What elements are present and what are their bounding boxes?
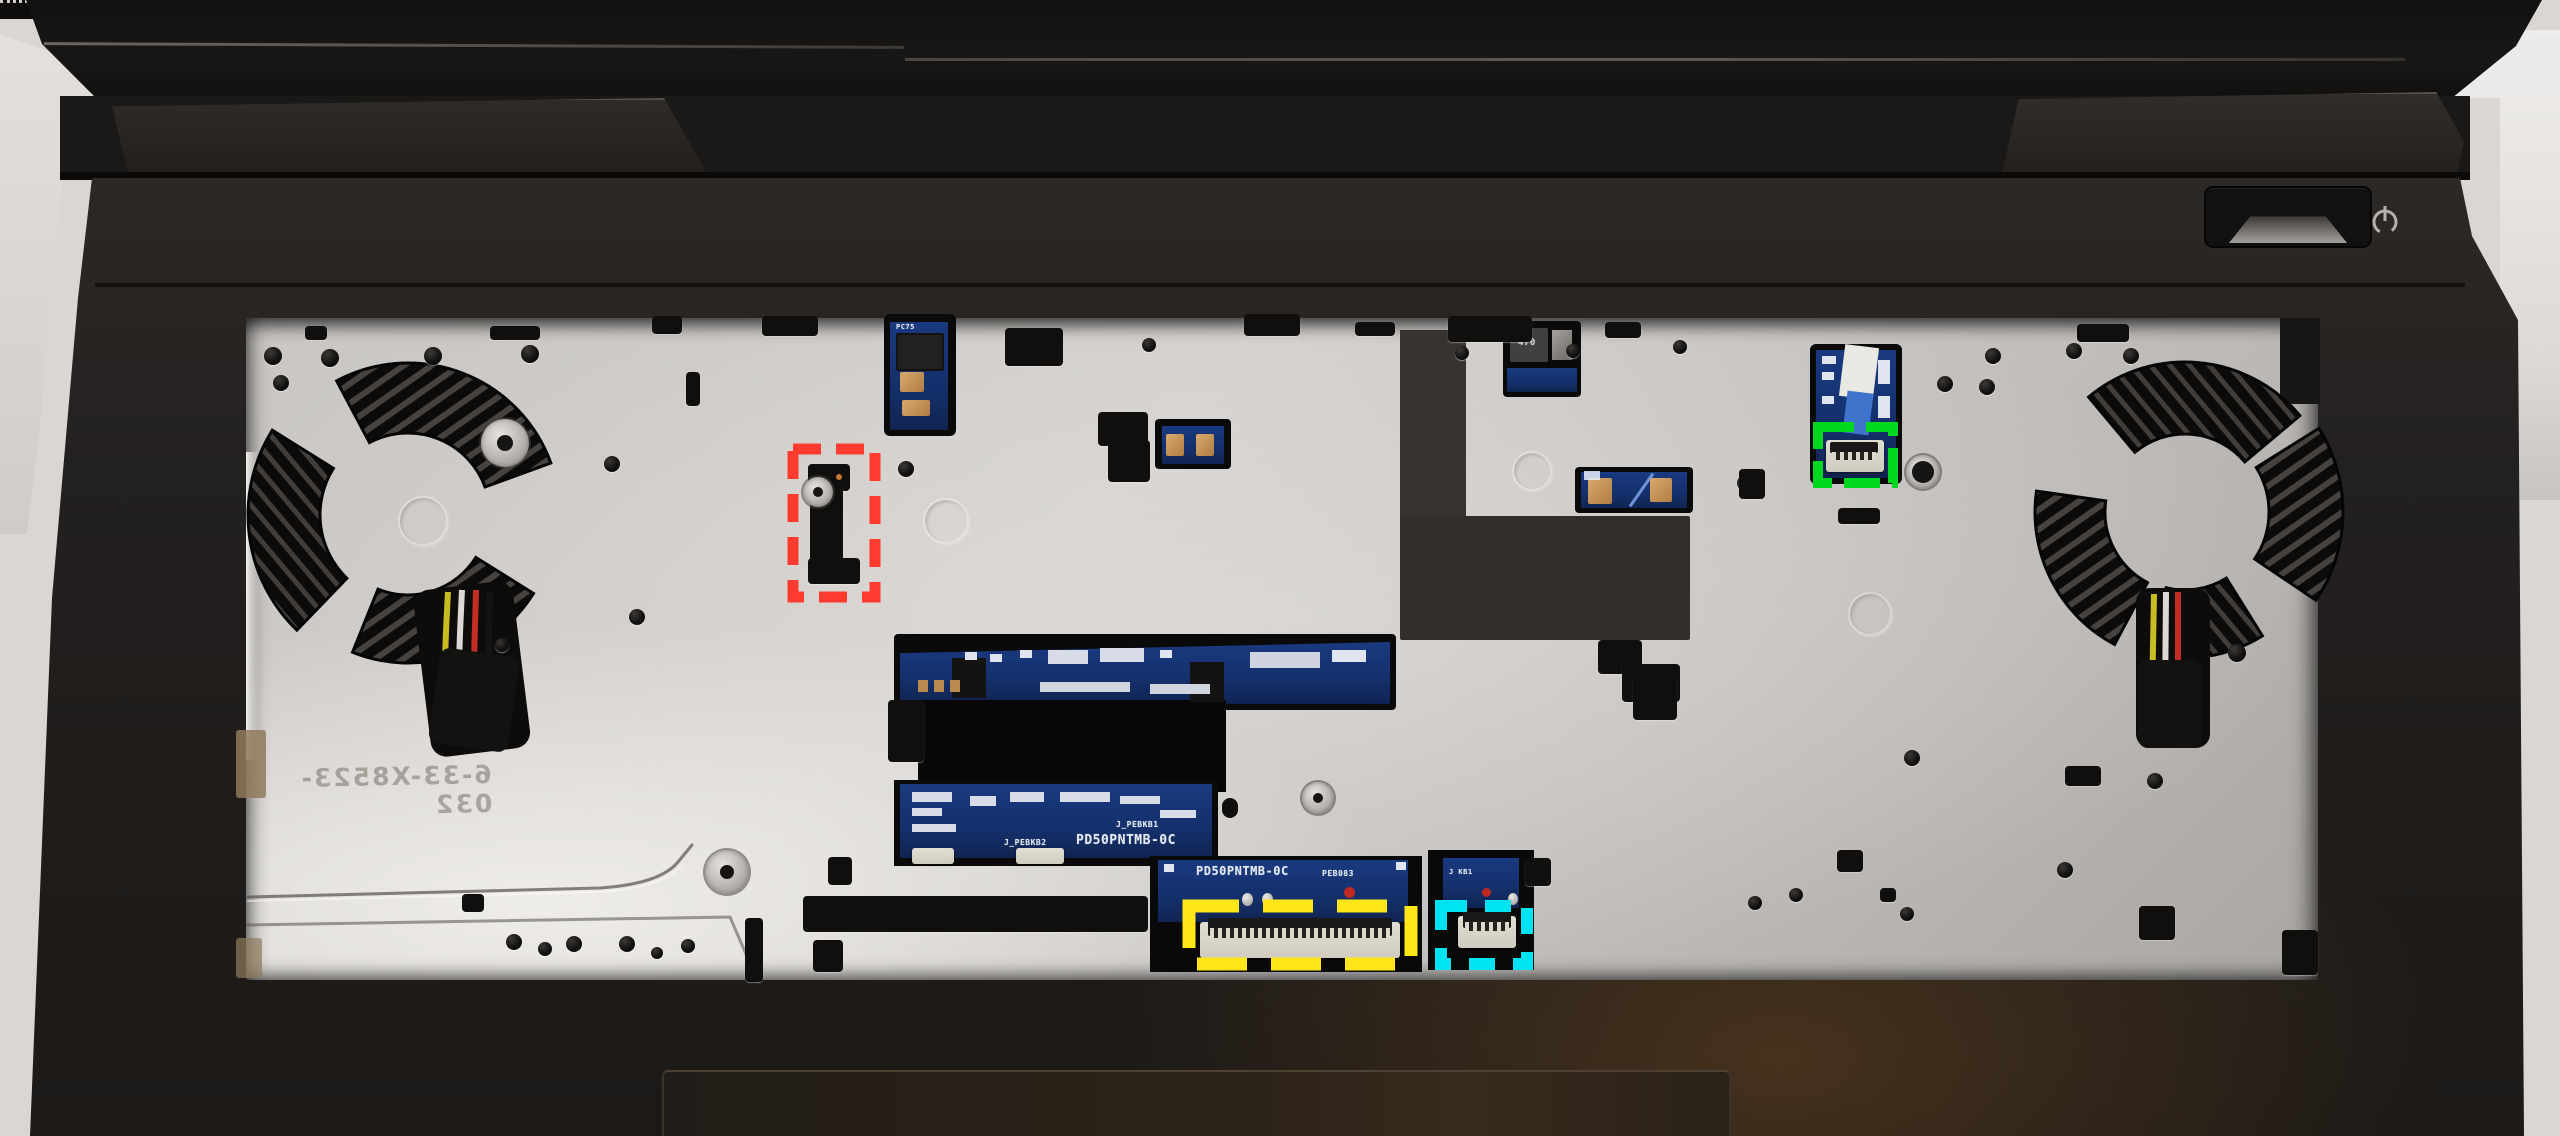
chassis-cutout bbox=[490, 326, 540, 340]
chassis-cutout bbox=[305, 326, 327, 340]
component-speck bbox=[970, 796, 996, 806]
chassis-cutout bbox=[1005, 328, 1063, 366]
screw-hole bbox=[264, 347, 282, 365]
callout-green bbox=[1818, 427, 1893, 483]
screw-hole bbox=[619, 936, 635, 952]
chassis-cutout bbox=[1633, 678, 1677, 720]
fan-blade-cutout bbox=[2255, 428, 2343, 600]
component-speck bbox=[990, 654, 1002, 662]
component-speck bbox=[1190, 662, 1224, 702]
component-speck bbox=[950, 680, 960, 692]
component-speck bbox=[912, 824, 956, 832]
component-speck bbox=[1010, 792, 1044, 802]
callout-red bbox=[793, 449, 875, 597]
screw-hole bbox=[506, 934, 522, 950]
screw-hole bbox=[2066, 343, 2082, 359]
screw-hole bbox=[521, 345, 539, 363]
component-speck bbox=[1396, 862, 1406, 870]
screw-hole bbox=[2228, 644, 2246, 662]
component-speck bbox=[1060, 792, 1110, 802]
screw-hole bbox=[898, 461, 914, 477]
component-speck bbox=[1822, 372, 1834, 380]
fan-blade-cutout bbox=[248, 430, 347, 630]
screw-hole bbox=[2057, 862, 2073, 878]
tray-creases bbox=[248, 845, 758, 982]
component-speck bbox=[1250, 652, 1320, 668]
screw-hole bbox=[566, 936, 582, 952]
chassis-cutout bbox=[1525, 858, 1551, 886]
chassis-cutout bbox=[803, 896, 1148, 932]
screw-hole bbox=[273, 375, 289, 391]
chassis-cutout bbox=[2065, 766, 2101, 786]
screw-hole bbox=[1748, 896, 1762, 910]
standoff-hole bbox=[497, 435, 513, 451]
screw-standoff bbox=[481, 419, 529, 467]
chassis-cutout bbox=[762, 316, 818, 336]
screw-standoff bbox=[1302, 782, 1334, 814]
screw-hole bbox=[629, 609, 645, 625]
screw-hole bbox=[1566, 344, 1580, 358]
component-speck bbox=[918, 680, 928, 692]
callout-cyan bbox=[1441, 906, 1527, 964]
power-icon bbox=[2370, 206, 2400, 237]
screw-hole bbox=[1937, 376, 1953, 392]
standoff-hole bbox=[1313, 793, 1323, 803]
callout-yellow bbox=[1189, 906, 1411, 964]
screw-hole bbox=[681, 939, 695, 953]
chassis-cutout bbox=[2139, 906, 2175, 940]
embossed-dimple bbox=[398, 496, 448, 546]
screw-hole bbox=[2123, 348, 2139, 364]
fan-cutouts bbox=[248, 362, 2343, 663]
screw-hole bbox=[321, 349, 339, 367]
chassis-cutout bbox=[888, 700, 924, 762]
screw-hole bbox=[1985, 348, 2001, 364]
screw-hole bbox=[538, 942, 552, 956]
chassis-cutout bbox=[462, 894, 484, 912]
chassis-cutout bbox=[813, 940, 843, 972]
component-speck bbox=[1878, 360, 1890, 384]
chassis-cutout bbox=[652, 316, 682, 334]
fan-cable-right bbox=[2136, 588, 2210, 748]
screw-standoff bbox=[1906, 455, 1940, 489]
screw-hole bbox=[1900, 907, 1914, 921]
fan-blade-cutout bbox=[2089, 362, 2300, 462]
chassis-cutout bbox=[1355, 322, 1395, 336]
screw-hole bbox=[1455, 346, 1469, 360]
chassis-cutout bbox=[1244, 314, 1300, 336]
screw-standoff bbox=[705, 850, 749, 894]
chassis-cutout bbox=[1880, 888, 1896, 902]
component-speck bbox=[1048, 650, 1088, 664]
chassis-cutout bbox=[1108, 440, 1150, 482]
component-speck bbox=[912, 808, 942, 816]
component-speck bbox=[1160, 650, 1172, 658]
screw-hole bbox=[604, 456, 620, 472]
chassis-cutout bbox=[2282, 930, 2318, 975]
overlay-graphics bbox=[0, 0, 2560, 1136]
component-speck bbox=[934, 680, 944, 692]
standoff-hole bbox=[813, 487, 823, 497]
component-speck bbox=[1160, 810, 1196, 818]
component-speck bbox=[1878, 396, 1890, 418]
component-speck bbox=[1020, 650, 1032, 658]
screw-hole bbox=[1673, 340, 1687, 354]
component-speck bbox=[1100, 648, 1144, 662]
screw-hole bbox=[1142, 338, 1156, 352]
component-speck bbox=[1822, 356, 1836, 364]
standoff-hole bbox=[1912, 461, 1934, 483]
component-speck bbox=[1822, 396, 1834, 404]
embossed-dimple bbox=[1848, 592, 1892, 636]
chassis-cutout bbox=[1605, 322, 1641, 338]
chassis-cutout bbox=[1739, 469, 1765, 499]
component-speck bbox=[1120, 796, 1160, 804]
component-speck bbox=[965, 652, 977, 660]
standoff-hole bbox=[720, 865, 734, 879]
component-speck bbox=[1040, 682, 1130, 692]
chassis-cutout bbox=[1838, 508, 1880, 524]
screw-hole bbox=[2147, 773, 2163, 789]
screw-standoff bbox=[803, 477, 833, 507]
component-speck bbox=[952, 658, 986, 698]
component-speck bbox=[1150, 684, 1210, 694]
screw-hole bbox=[495, 638, 509, 652]
fan-blade-cutout bbox=[2035, 491, 2147, 644]
chassis-cutout bbox=[686, 372, 700, 406]
chassis-cutout bbox=[1448, 316, 1532, 342]
screw-hole bbox=[424, 347, 442, 365]
chassis-cutout bbox=[745, 918, 763, 982]
photo-laptop-internals: 6-33-X8523-032 PC75 470 J_PEBKB2 J_PEBKB… bbox=[0, 0, 2560, 1136]
screw-hole bbox=[1789, 888, 1803, 902]
chassis-cutout bbox=[828, 857, 852, 885]
screw-hole bbox=[651, 947, 663, 959]
component-speck bbox=[912, 792, 952, 802]
component-speck bbox=[1332, 650, 1366, 662]
chassis-cutout bbox=[2077, 324, 2129, 342]
screw-hole bbox=[1979, 379, 1995, 395]
embossed-dimple bbox=[1512, 451, 1552, 491]
embossed-dimple bbox=[923, 498, 969, 544]
fan-cable-left bbox=[412, 580, 532, 759]
screw-hole bbox=[1904, 750, 1920, 766]
component-speck bbox=[1164, 864, 1174, 872]
chassis-cutout bbox=[1837, 850, 1863, 872]
